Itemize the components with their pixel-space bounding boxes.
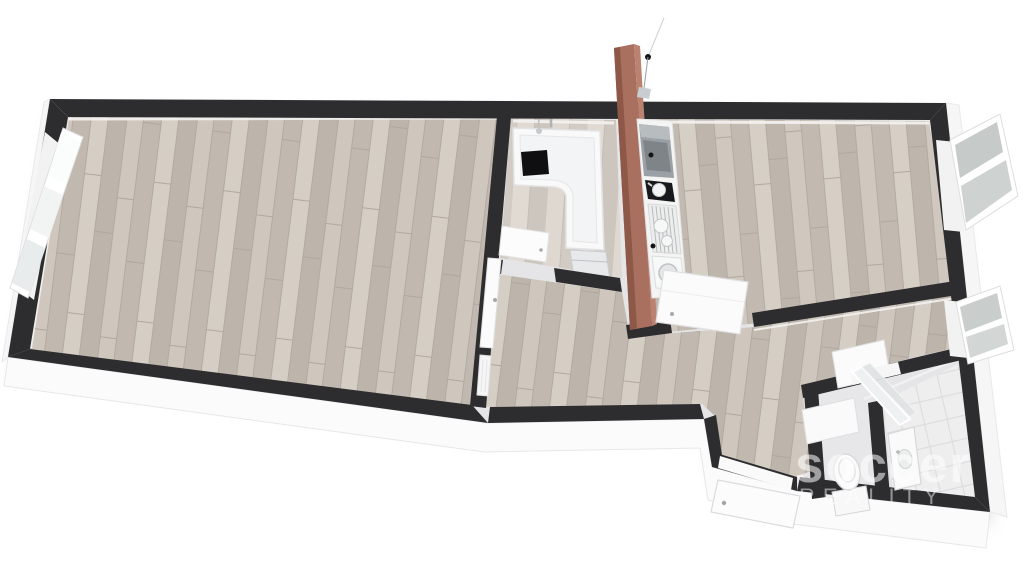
black-bath-tray: [521, 150, 549, 176]
pot-icon: [653, 184, 666, 197]
door-handle-icon: [493, 298, 497, 302]
plate-icon: [654, 219, 668, 233]
plate-icon: [662, 236, 673, 247]
watermark: soccer REALITY: [795, 436, 971, 509]
pendant-shade: [637, 87, 651, 99]
door-handle-icon: [539, 248, 543, 252]
radiator: [477, 355, 491, 396]
floor-plan-svg: soccer REALITY: [0, 0, 1024, 576]
shower-head-icon: [536, 128, 542, 134]
watermark-line2: REALITY: [799, 484, 947, 509]
floor-plan-render: soccer REALITY: [0, 0, 1024, 576]
door-bathroom-top-open: [499, 226, 549, 262]
lamp-wire: [648, 18, 664, 57]
door-livingright-open: [656, 270, 748, 334]
door-handle-icon: [670, 312, 674, 316]
door-handle-icon: [722, 501, 726, 505]
knob-icon: [651, 244, 656, 249]
knob-icon: [649, 153, 654, 158]
